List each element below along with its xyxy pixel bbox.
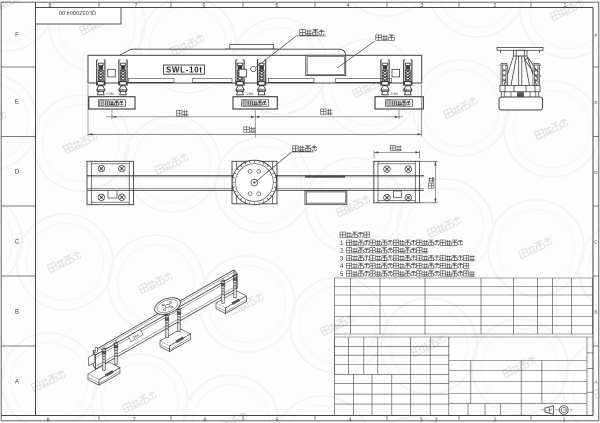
- svg-text:E: E: [15, 99, 19, 106]
- svg-text:0.5M: 0.5M: [246, 92, 253, 96]
- svg-text:2: 2: [494, 3, 497, 9]
- svg-text:7: 7: [135, 3, 138, 9]
- svg-text:C: C: [15, 239, 20, 246]
- svg-text:B: B: [594, 310, 597, 316]
- svg-text:FR: FR: [403, 88, 408, 92]
- svg-text:1: 1: [562, 418, 565, 423]
- svg-text:FR: FR: [258, 88, 263, 92]
- svg-text:C: C: [594, 240, 598, 246]
- svg-text:5: 5: [276, 3, 279, 9]
- svg-text:8: 8: [46, 418, 49, 423]
- svg-text:E: E: [594, 100, 597, 106]
- svg-text:FR: FR: [119, 88, 124, 92]
- svg-text:3: 3: [421, 3, 424, 9]
- svg-text:6: 6: [203, 418, 206, 423]
- svg-text:4: 4: [347, 3, 350, 9]
- svg-text:7: 7: [132, 418, 135, 423]
- svg-text:D: D: [15, 169, 20, 176]
- svg-text:6: 6: [203, 3, 206, 9]
- svg-text:1: 1: [564, 3, 567, 9]
- svg-text:F: F: [15, 32, 19, 39]
- svg-text:0.5M: 0.5M: [107, 92, 114, 96]
- svg-text:3: 3: [419, 418, 422, 423]
- svg-text:4: 4: [348, 418, 351, 423]
- svg-text:2: 2: [493, 418, 496, 423]
- svg-text:QL03Z0004.00: QL03Z0004.00: [59, 9, 96, 15]
- svg-text:0.5M: 0.5M: [391, 92, 398, 96]
- svg-text:3: 3: [434, 418, 437, 423]
- svg-text:F: F: [595, 33, 598, 39]
- svg-text:SWL-10t: SWL-10t: [166, 66, 202, 75]
- svg-text:D: D: [594, 170, 598, 176]
- svg-text:B: B: [15, 309, 19, 316]
- svg-text:5: 5: [275, 418, 278, 423]
